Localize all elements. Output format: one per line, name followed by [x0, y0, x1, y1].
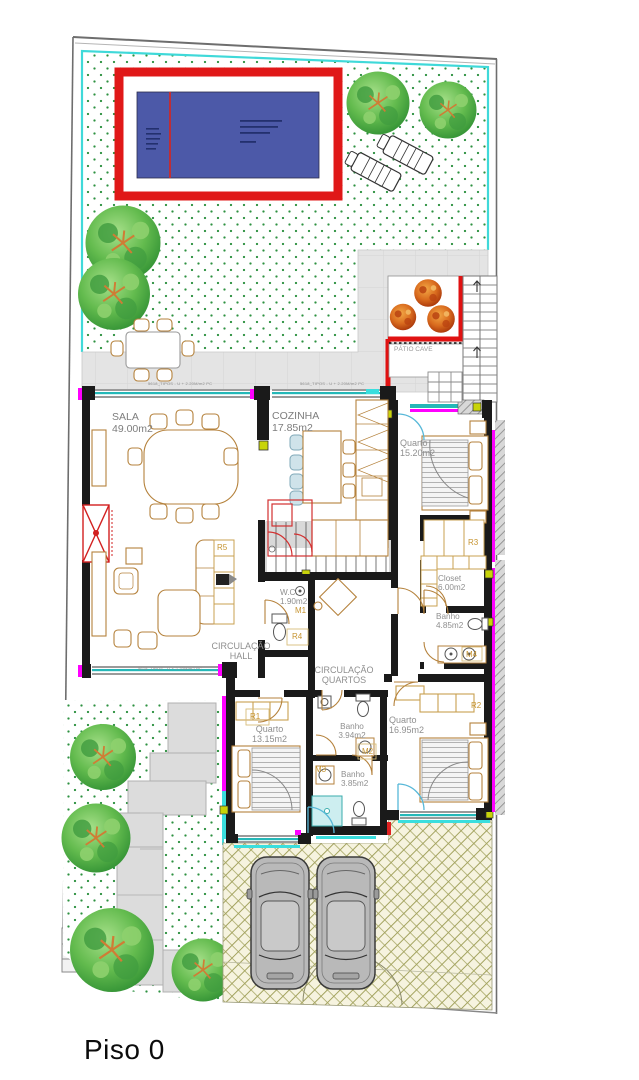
floor-plan-page: SALA49.00m2 COZINHA17.85m2 Quarto15.20m2…	[0, 0, 639, 1080]
sala-shelf-r5	[214, 540, 237, 624]
exterior-stairs	[463, 276, 497, 402]
floor-plan-drawing	[0, 0, 639, 1080]
swimming-pool	[119, 72, 338, 196]
suite-furniture	[422, 421, 488, 523]
wardrobe-r3	[424, 520, 484, 560]
outdoor-table-ne	[428, 372, 462, 402]
patio-cave	[388, 276, 466, 387]
